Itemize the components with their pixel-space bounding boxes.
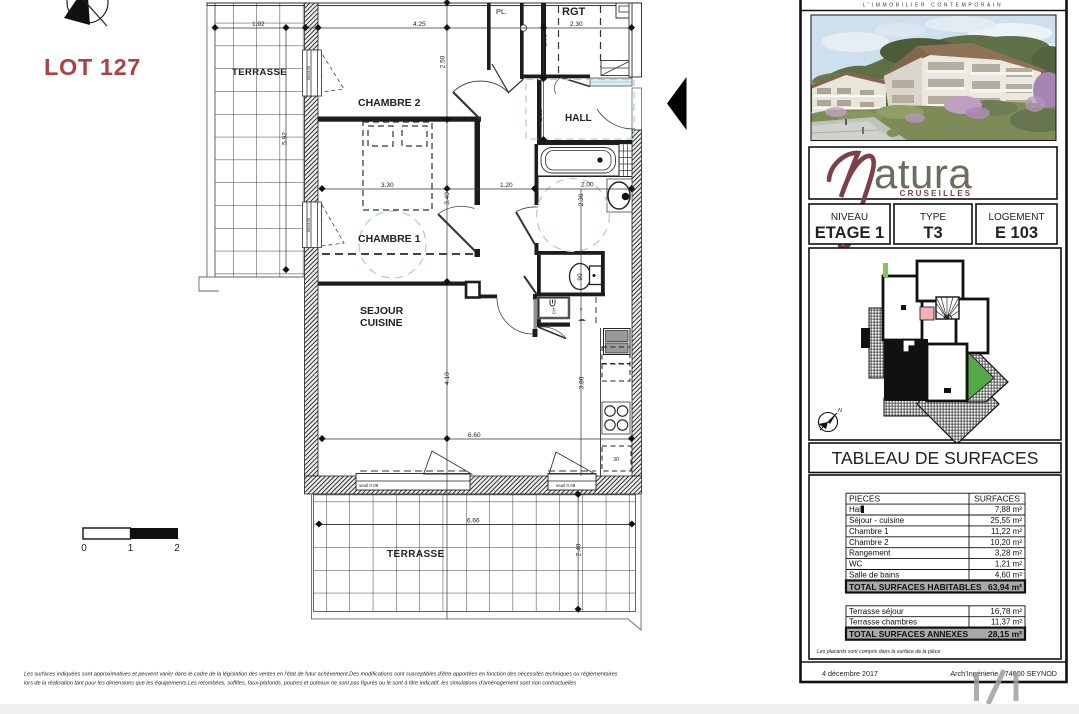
svg-text:Les surfaces indiquées sont ap: Les surfaces indiquées sont approximativ… xyxy=(24,672,618,678)
svg-text:Terrasse séjour: Terrasse séjour xyxy=(849,607,904,616)
svg-text:6.60: 6.60 xyxy=(468,432,481,439)
svg-text:1: 1 xyxy=(128,543,134,554)
svg-text:1.92: 1.92 xyxy=(252,21,265,28)
svg-text:0: 0 xyxy=(81,543,87,554)
svg-text:CUISINE: CUISINE xyxy=(360,317,403,329)
svg-text:lors de la réalisation tant po: lors de la réalisation tant pour les dim… xyxy=(24,681,577,687)
svg-text:N: N xyxy=(838,408,842,414)
svg-text:3.80: 3.80 xyxy=(579,376,586,389)
svg-text:CHAMBRE 2: CHAMBRE 2 xyxy=(358,97,421,109)
svg-text:Terrasse chambres: Terrasse chambres xyxy=(849,618,917,627)
svg-text:4,60 m²: 4,60 m² xyxy=(995,571,1022,580)
svg-text:Rangement: Rangement xyxy=(849,549,891,558)
svg-text:WC: WC xyxy=(849,560,863,569)
svg-text:L'IMMOBILIER CONTEMPORAIN: L'IMMOBILIER CONTEMPORAIN xyxy=(863,3,1003,9)
svg-text:30: 30 xyxy=(613,457,619,463)
svg-text:seuil 0.09: seuil 0.09 xyxy=(359,483,379,488)
svg-text:2: 2 xyxy=(174,543,180,554)
svg-text:Salle de bains: Salle de bains xyxy=(849,571,899,580)
svg-text:2.30: 2.30 xyxy=(570,21,583,28)
svg-text:TOTAL SURFACES HABITABLES: TOTAL SURFACES HABITABLES xyxy=(849,582,982,592)
svg-text:2.40: 2.40 xyxy=(576,543,583,556)
svg-text:TERRASSE: TERRASSE xyxy=(387,549,445,560)
svg-text:CRUSEILLES: CRUSEILLES xyxy=(900,189,973,198)
svg-text:LOGEMENT: LOGEMENT xyxy=(988,212,1044,223)
svg-text:seuil 0.09: seuil 0.09 xyxy=(556,483,576,488)
svg-text:3.40: 3.40 xyxy=(444,192,451,205)
svg-text:TYPE: TYPE xyxy=(920,212,946,223)
svg-text:F: F xyxy=(580,307,583,312)
svg-text:2.30: 2.30 xyxy=(578,193,585,206)
svg-text:SEJOUR: SEJOUR xyxy=(360,305,404,317)
svg-text:NIVEAU: NIVEAU xyxy=(831,212,868,223)
svg-text:1.35: 1.35 xyxy=(537,108,544,121)
svg-text:25,55 m²: 25,55 m² xyxy=(990,516,1022,525)
svg-text:16,78 m²: 16,78 m² xyxy=(990,607,1022,616)
svg-text:3,28 m²: 3,28 m² xyxy=(995,549,1022,558)
svg-text:10,20 m²: 10,20 m² xyxy=(990,538,1022,547)
svg-text:4 décembre 2017: 4 décembre 2017 xyxy=(822,669,878,678)
svg-text:PIECES: PIECES xyxy=(849,494,881,504)
svg-text:11,22 m²: 11,22 m² xyxy=(991,527,1022,536)
svg-text:3.30: 3.30 xyxy=(381,182,394,189)
svg-text:TOTAL SURFACES ANNEXES: TOTAL SURFACES ANNEXES xyxy=(849,629,969,639)
svg-text:Séjour - cuisine: Séjour - cuisine xyxy=(849,516,905,525)
svg-text:T3: T3 xyxy=(923,224,942,242)
svg-text:Chambre 2: Chambre 2 xyxy=(849,538,889,547)
svg-text:90: 90 xyxy=(577,273,584,281)
svg-text:600/100: 600/100 xyxy=(306,217,311,232)
svg-text:ETAGE 1: ETAGE 1 xyxy=(815,224,884,242)
svg-text:Chambre 1: Chambre 1 xyxy=(849,527,889,536)
svg-text:HALL: HALL xyxy=(565,113,592,124)
svg-text:Les placards sont compris dans: Les placards sont compris dans la surfac… xyxy=(817,649,941,655)
svg-text:TABLEAU DE SURFACES: TABLEAU DE SURFACES xyxy=(832,448,1039,468)
svg-text:2.50: 2.50 xyxy=(440,55,447,68)
svg-text:1,21 m²: 1,21 m² xyxy=(995,560,1022,569)
svg-text:SURFACES: SURFACES xyxy=(974,494,1020,504)
svg-text:Hal: Hal xyxy=(849,505,861,514)
svg-text:600/100: 600/100 xyxy=(306,65,311,80)
svg-text:E 103: E 103 xyxy=(995,224,1038,242)
svg-text:PL.: PL. xyxy=(496,7,507,16)
svg-text:LOT 127: LOT 127 xyxy=(44,54,141,80)
svg-text:4.10: 4.10 xyxy=(444,372,451,385)
svg-text:CHAMBRE 1: CHAMBRE 1 xyxy=(358,233,421,245)
svg-text:6.66: 6.66 xyxy=(467,518,480,525)
svg-text:63,94 m²: 63,94 m² xyxy=(988,582,1022,592)
svg-text:5.92: 5.92 xyxy=(282,132,289,145)
svg-text:2.00: 2.00 xyxy=(581,182,594,189)
svg-text:RGT: RGT xyxy=(562,6,586,18)
svg-text:CH: CH xyxy=(552,308,557,315)
svg-text:1.20: 1.20 xyxy=(500,182,513,189)
svg-text:4.25: 4.25 xyxy=(413,21,426,28)
svg-text:TERRASSE: TERRASSE xyxy=(232,67,287,78)
svg-text:28,15 m²: 28,15 m² xyxy=(988,629,1022,639)
svg-text:1.55: 1.55 xyxy=(542,34,549,47)
svg-text:11,37 m²: 11,37 m² xyxy=(991,618,1022,627)
svg-text:7,88 m²: 7,88 m² xyxy=(995,505,1022,514)
